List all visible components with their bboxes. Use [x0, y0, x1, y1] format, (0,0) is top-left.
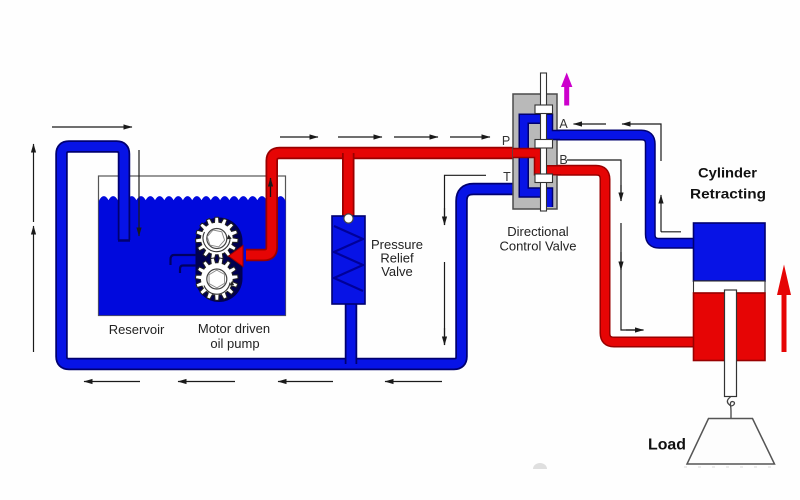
svg-text:Valve: Valve	[381, 264, 413, 279]
svg-text:oil pump: oil pump	[210, 336, 259, 351]
svg-text:A: A	[559, 117, 568, 131]
svg-text:Cylinder: Cylinder	[698, 166, 758, 181]
svg-text:Retracting: Retracting	[690, 187, 766, 202]
svg-text:Reservoir: Reservoir	[109, 322, 165, 337]
svg-text:Motor driven: Motor driven	[198, 321, 270, 336]
svg-text:Control Valve: Control Valve	[499, 239, 576, 254]
svg-text:T: T	[503, 170, 511, 184]
svg-text:P: P	[502, 134, 510, 148]
svg-text:Directional: Directional	[507, 224, 569, 239]
svg-text:B: B	[559, 153, 567, 167]
svg-text:Load: Load	[648, 437, 686, 454]
